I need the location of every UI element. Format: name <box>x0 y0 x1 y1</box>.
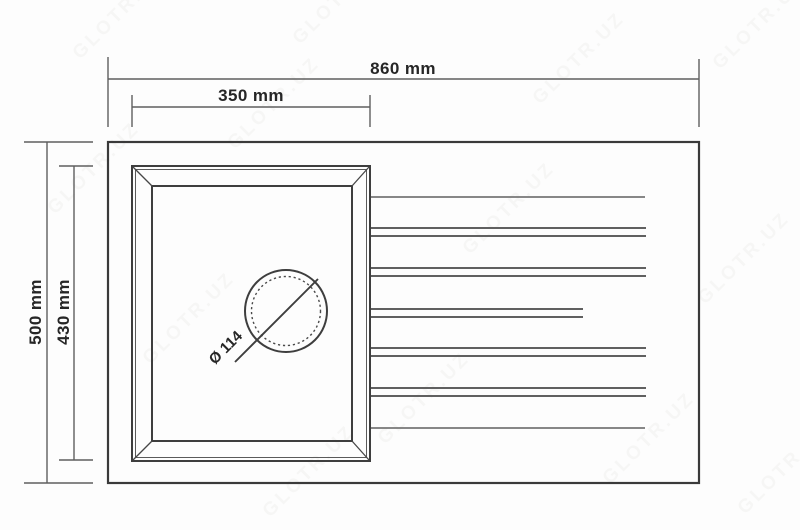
dim-overall-width-label: 860 mm <box>370 59 436 78</box>
watermark-text: GLOTR.UZ <box>289 0 389 49</box>
sink-diagram: GLOTR.UZ GLOTR.UZ GLOTR.UZ GLOTR.UZ GLOT… <box>0 0 800 530</box>
watermark-text: GLOTR.UZ <box>69 0 169 64</box>
watermark-layer: GLOTR.UZ GLOTR.UZ GLOTR.UZ GLOTR.UZ GLOT… <box>44 0 800 522</box>
dim-drain-diameter-label: Ø 114 <box>206 327 247 368</box>
watermark-text: GLOTR.UZ <box>374 348 474 448</box>
watermark-text: GLOTR.UZ <box>709 0 800 74</box>
drain-diameter-leader <box>235 279 318 362</box>
watermark-text: GLOTR.UZ <box>459 158 559 258</box>
watermark-text: GLOTR.UZ <box>734 418 800 518</box>
watermark-text: GLOTR.UZ <box>599 388 699 488</box>
dim-bowl-depth-label: 430 mm <box>54 279 73 345</box>
dim-bowl-width-label: 350 mm <box>218 86 284 105</box>
dim-overall-depth-label: 500 mm <box>26 279 45 345</box>
watermark-text: GLOTR.UZ <box>694 208 794 308</box>
drainboard-grooves <box>371 197 646 428</box>
dimension-overall-width: 860 mm <box>108 57 699 127</box>
watermark-text: GLOTR.UZ <box>44 118 144 218</box>
technical-drawing-canvas: GLOTR.UZ GLOTR.UZ GLOTR.UZ GLOTR.UZ GLOT… <box>0 0 800 530</box>
watermark-text: GLOTR.UZ <box>529 8 629 108</box>
watermark-text: GLOTR.UZ <box>259 421 359 521</box>
